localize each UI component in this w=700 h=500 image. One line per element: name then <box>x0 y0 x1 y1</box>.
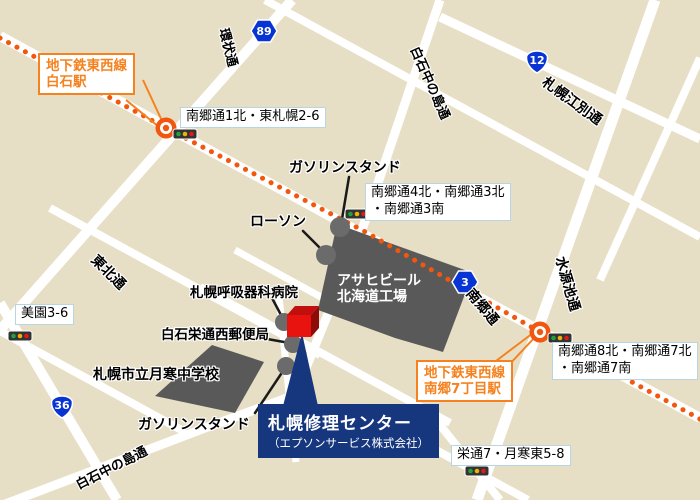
intersection-label: 南郷通4北・南郷通3北 ・南郷通3南 <box>365 183 511 221</box>
poi-label-school: 札幌市立月寒中学校 <box>93 364 219 384</box>
poi-dot-lawson <box>316 245 336 265</box>
map-canvas: アサヒビール 北海道工場 環状通 白石中の島通 札幌江別通 南郷通 水源池通 東… <box>0 0 700 500</box>
shield-number-3: 3 <box>452 276 478 289</box>
intersection-label-line2: ・南郷通3南 <box>371 202 505 219</box>
intersection-label: 南郷通1北・東札幌2-6 <box>180 107 326 128</box>
traffic-light-icon <box>465 466 489 476</box>
intersection-label: 南郷通8北・南郷通7北 ・南郷通7南 <box>552 342 698 380</box>
shield-number-12: 12 <box>524 54 550 67</box>
building-label-asahi: アサヒビール 北海道工場 <box>337 273 421 305</box>
intersection-label-text: 栄通7・月寒東5-8 <box>457 447 565 462</box>
road <box>600 58 700 280</box>
destination-box: 札幌修理センター （エプソンサービス株式会社） <box>258 404 439 458</box>
intersection-label: 美園3-6 <box>15 304 74 325</box>
building-label-line1: アサヒビール <box>337 273 421 289</box>
station-name: 白石駅 <box>46 74 127 90</box>
traffic-light-icon <box>8 331 32 341</box>
intersection-label-text: 美園3-6 <box>21 306 68 321</box>
poi-label-lawson: ローソン <box>250 211 306 231</box>
station-marker-nango7chome <box>530 322 551 343</box>
poi-label-gas-station-2: ガソリンスタンド <box>138 414 250 434</box>
station-name: 南郷7丁目駅 <box>424 381 505 397</box>
intersection-label-line1: 南郷通4北・南郷通3北 <box>371 185 505 202</box>
traffic-light-icon <box>173 129 197 139</box>
station-line-name: 地下鉄東西線 <box>424 365 505 381</box>
intersection-label-line1: 南郷通8北・南郷通7北 <box>558 344 692 361</box>
shield-number-36: 36 <box>49 399 75 412</box>
intersection-label-text: 南郷通1北・東札幌2-6 <box>186 109 320 124</box>
station-callout-box-shiroishi: 地下鉄東西線 白石駅 <box>38 53 135 95</box>
building-label-line2: 北海道工場 <box>337 289 421 305</box>
intersection-label: 栄通7・月寒東5-8 <box>451 445 571 466</box>
destination-building-marker <box>287 306 319 337</box>
poi-label-gas-station: ガソリンスタンド <box>289 157 401 177</box>
poi-dot-gas-station <box>330 217 350 237</box>
shield-number-89: 89 <box>251 25 277 38</box>
poi-label-hospital: 札幌呼吸器科病院 <box>190 281 298 301</box>
destination-company: （エプソンサービス株式会社） <box>268 435 429 451</box>
intersection-label-line2: ・南郷通7南 <box>558 361 692 378</box>
poi-line <box>303 231 319 247</box>
destination-title: 札幌修理センター <box>268 409 429 434</box>
poi-label-post-office: 白石栄通西郵便局 <box>161 323 269 343</box>
station-callout-box-nango7chome: 地下鉄東西線 南郷7丁目駅 <box>416 360 513 402</box>
station-line-name: 地下鉄東西線 <box>46 58 127 74</box>
